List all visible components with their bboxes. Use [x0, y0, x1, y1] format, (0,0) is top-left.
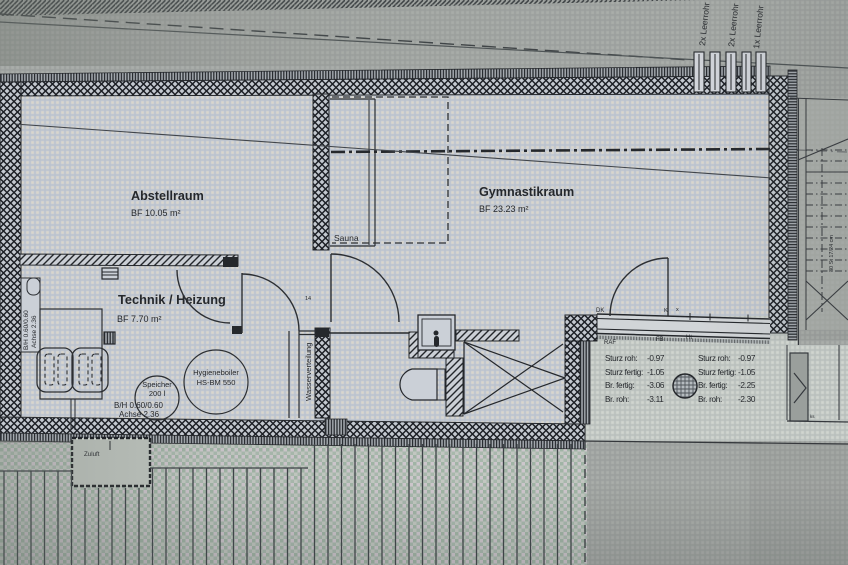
svg-text:Sturz fertig:: Sturz fertig:: [605, 368, 643, 377]
svg-text:14: 14: [305, 296, 311, 302]
svg-text:Sauna: Sauna: [334, 233, 359, 243]
svg-text:B/H 0.60/0.60: B/H 0.60/0.60: [23, 310, 30, 350]
svg-text:-2.25: -2.25: [738, 381, 756, 390]
svg-text:-2.30: -2.30: [738, 395, 756, 404]
svg-text:Technik / Heizung: Technik / Heizung: [118, 292, 226, 307]
svg-text:Abstellraum: Abstellraum: [131, 189, 204, 203]
svg-text:-3.11: -3.11: [647, 395, 664, 404]
svg-text:Speicher: Speicher: [142, 380, 172, 389]
svg-text:B/H 0.60/0.60: B/H 0.60/0.60: [114, 401, 163, 410]
svg-text:Br. roh:: Br. roh:: [605, 395, 629, 404]
svg-text:BF 7.70 m²: BF 7.70 m²: [117, 314, 162, 324]
svg-text:HS-BM 550: HS-BM 550: [197, 378, 236, 387]
svg-text:Sturz fertig:: Sturz fertig:: [698, 368, 736, 377]
svg-text:-1.05: -1.05: [738, 368, 756, 377]
svg-text:-3.06: -3.06: [647, 381, 665, 390]
svg-text:-1.05: -1.05: [647, 368, 665, 377]
svg-text:Achse 2.36: Achse 2.36: [31, 315, 38, 348]
svg-text:Ht: Ht: [686, 335, 692, 341]
svg-text:200 l: 200 l: [149, 389, 166, 398]
svg-text:DK: DK: [596, 308, 604, 314]
svg-text:x: x: [676, 307, 679, 313]
svg-text:K: K: [664, 308, 668, 314]
svg-text:RAF: RAF: [604, 340, 616, 346]
svg-text:Achse 2.36: Achse 2.36: [119, 410, 160, 419]
svg-text:BF 23.23 m²: BF 23.23 m²: [479, 204, 529, 214]
svg-text:Wasserverteilung: Wasserverteilung: [304, 343, 313, 401]
svg-text:FB: FB: [656, 337, 664, 343]
svg-text:ks: ks: [810, 414, 815, 419]
svg-text:Br. roh:: Br. roh:: [698, 395, 722, 404]
svg-text:BF 10.05 m²: BF 10.05 m²: [131, 208, 181, 218]
svg-text:Hygieneboiler: Hygieneboiler: [193, 368, 239, 377]
svg-text:-0.97: -0.97: [738, 354, 756, 363]
svg-text:Sturz roh:: Sturz roh:: [698, 354, 731, 363]
svg-text:-0.97: -0.97: [647, 354, 665, 363]
svg-text:Sturz roh:: Sturz roh:: [605, 354, 638, 363]
svg-text:Br. fertig:: Br. fertig:: [698, 381, 727, 390]
svg-text:Br. fertig:: Br. fertig:: [605, 381, 634, 390]
svg-text:Gymnastikraum: Gymnastikraum: [479, 185, 574, 199]
